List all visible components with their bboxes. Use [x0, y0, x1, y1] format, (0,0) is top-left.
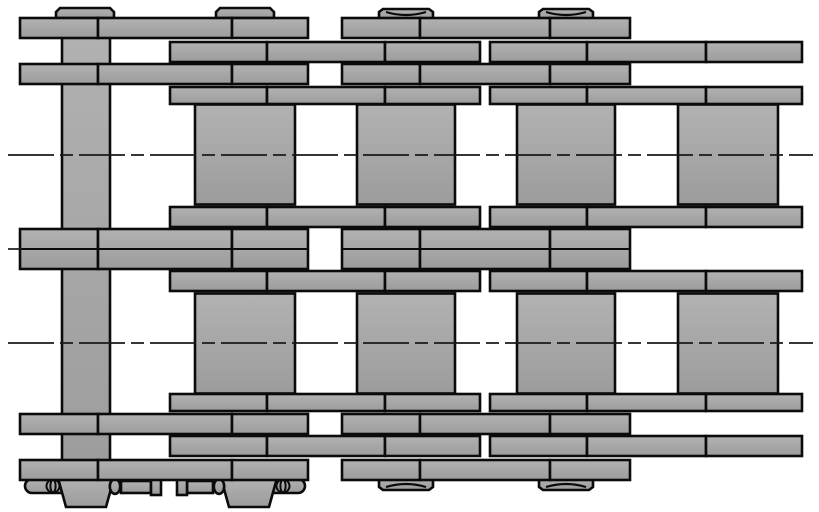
plate-row-bottom-outer-segment-1	[20, 460, 98, 480]
plate-row-bottom-outer-segment-5	[420, 460, 550, 480]
plate-row-top-outer-segment-2	[98, 18, 232, 38]
plate-row-mid-lower-segment-3	[385, 271, 480, 291]
plate-row-top-inner-segment-6	[706, 87, 802, 104]
plate-row-mid-lower-segment-6	[706, 271, 802, 291]
plate-row-top-2-segment-2	[267, 42, 385, 62]
plate-row-top-outer-segment-5	[420, 18, 550, 38]
plate-row-top-inner-segment-5	[587, 87, 706, 104]
plate-row-mid-upper-segment-5	[587, 207, 706, 227]
page: { "drawing": { "label": "Duplex roller c…	[0, 0, 819, 512]
plate-row-bottom-2-segment-1	[170, 436, 267, 456]
plate-row-bottom-inner-segment-1	[170, 394, 267, 411]
plate-row-top-2-segment-5	[587, 42, 706, 62]
plate-row-top-inner-segment-3	[385, 87, 480, 104]
plate-row-bottom-3-segment-4	[342, 414, 420, 434]
cotter-exit-ring-right	[214, 479, 224, 494]
plate-row-mid-upper-segment-4	[490, 207, 587, 227]
plate-row-mid-upper-segment-3	[385, 207, 480, 227]
plate-row-bottom-inner-segment-2	[267, 394, 385, 411]
plate-row-bottom-outer-segment-2	[98, 460, 232, 480]
plate-row-bottom-inner-segment-5	[587, 394, 706, 411]
roller-chain-drawing	[0, 0, 819, 512]
plate-row-mid-lower-segment-5	[587, 271, 706, 291]
plate-row-bottom-outer-segment-6	[550, 460, 630, 480]
plate-row-top-3-segment-4	[342, 64, 420, 84]
plate-row-mid-lower-segment-2	[267, 271, 385, 291]
plate-row-bottom-2-segment-6	[706, 436, 802, 456]
cotter-prong-left	[121, 481, 151, 493]
plate-row-bottom-2-segment-5	[587, 436, 706, 456]
plate-row-bottom-2-segment-4	[490, 436, 587, 456]
cotter-prong-right	[187, 481, 213, 493]
plate-row-top-3-segment-2	[98, 64, 232, 84]
plate-row-top-3-segment-3	[232, 64, 308, 84]
plate-row-mid-upper-segment-6	[706, 207, 802, 227]
plate-row-top-inner-segment-4	[490, 87, 587, 104]
plate-row-bottom-3-segment-6	[550, 414, 630, 434]
plate-row-bottom-3-segment-1	[20, 414, 98, 434]
plate-row-top-3-segment-1	[20, 64, 98, 84]
cotter-exit-ring-left	[110, 479, 120, 494]
plate-row-top-outer-segment-6	[550, 18, 630, 38]
plate-row-top-outer-segment-1	[20, 18, 98, 38]
plate-row-bottom-3-segment-5	[420, 414, 550, 434]
plate-row-top-3-segment-5	[420, 64, 550, 84]
plate-row-top-2-segment-4	[490, 42, 587, 62]
plate-row-top-2-segment-1	[170, 42, 267, 62]
plate-row-bottom-outer-segment-3	[232, 460, 308, 480]
plate-row-top-2-segment-3	[385, 42, 480, 62]
plate-row-bottom-3-segment-2	[98, 414, 232, 434]
plate-row-bottom-inner-segment-3	[385, 394, 480, 411]
chain-drawing-svg	[0, 0, 819, 512]
plate-row-bottom-2-segment-3	[385, 436, 480, 456]
plate-row-mid-lower-segment-1	[170, 271, 267, 291]
pin-head-flat-2	[216, 8, 274, 18]
plate-row-top-2-segment-6	[706, 42, 802, 62]
plate-row-bottom-outer-segment-4	[342, 460, 420, 480]
plate-row-mid-upper-segment-1	[170, 207, 267, 227]
plate-row-bottom-3-segment-3	[232, 414, 308, 434]
plate-row-bottom-inner-segment-4	[490, 394, 587, 411]
plate-row-top-outer-segment-4	[342, 18, 420, 38]
pin-end-taper-left	[58, 478, 114, 507]
plate-row-top-outer-segment-3	[232, 18, 308, 38]
plate-row-mid-lower-segment-4	[490, 271, 587, 291]
plate-row-mid-upper-segment-2	[267, 207, 385, 227]
plate-row-top-inner-segment-2	[267, 87, 385, 104]
pin-end-taper-right	[221, 478, 277, 507]
plate-row-top-3-segment-6	[550, 64, 630, 84]
pin-head-flat-1	[56, 8, 114, 18]
plate-row-top-inner-segment-1	[170, 87, 267, 104]
plate-row-bottom-inner-segment-6	[706, 394, 802, 411]
plate-row-bottom-2-segment-2	[267, 436, 385, 456]
